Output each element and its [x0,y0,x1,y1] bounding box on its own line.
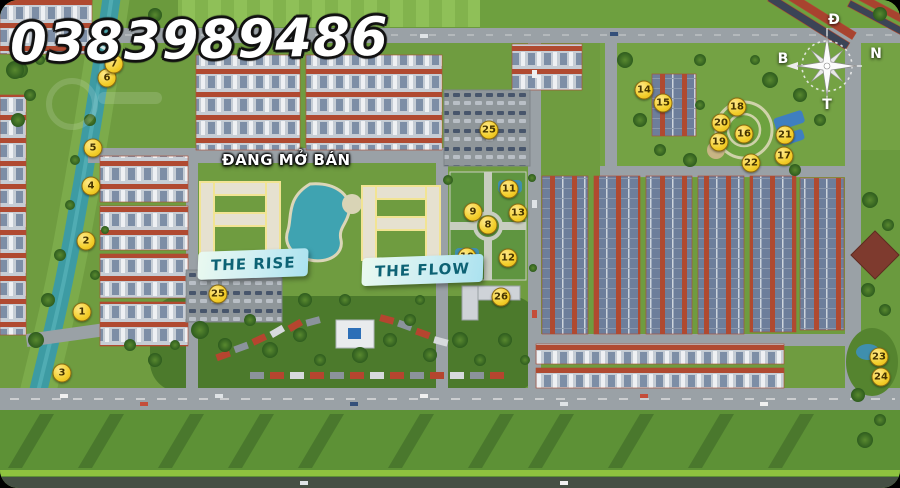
zone-label-the-rise: THE RISE [197,248,309,280]
masterplan-map: 1234567891011121314151617181920212223242… [0,0,900,488]
map-marker-3: 3 [53,364,72,383]
map-marker-19: 19 [710,133,729,152]
map-marker-5: 5 [84,139,103,158]
map-marker-17: 17 [775,147,794,166]
watermark-logo [46,76,166,124]
sales-status-label: ĐANG MỞ BÁN [222,151,351,169]
map-marker-21: 21 [776,126,795,145]
compass-label-west: T [822,97,832,113]
map-marker-15: 15 [654,94,673,113]
phone-number-overlay: 0383989486 [9,7,390,75]
map-marker-26: 26 [492,288,511,307]
map-marker-13: 13 [509,204,528,223]
map-marker-24: 24 [872,368,891,387]
map-marker-9: 9 [464,203,483,222]
map-marker-11: 11 [500,180,519,199]
map-marker-18: 18 [728,98,747,117]
map-marker-2: 2 [77,232,96,251]
screenshot-root: 1234567891011121314151617181920212223242… [0,0,900,488]
masterplan-render [0,0,900,488]
map-marker-20: 20 [712,114,731,133]
map-marker-12: 12 [499,249,518,268]
zone-label-the-flow: THE FLOW [361,254,483,286]
map-marker-25: 25 [209,285,228,304]
compass-label-north: N [870,46,882,62]
compass-label-east: Đ [828,12,840,28]
map-marker-8: 8 [479,216,498,235]
map-marker-22: 22 [742,154,761,173]
map-marker-16: 16 [735,125,754,144]
map-marker-1: 1 [73,303,92,322]
compass-rose: Đ N B T [772,10,884,122]
map-marker-4: 4 [82,177,101,196]
map-marker-14: 14 [635,81,654,100]
map-marker-25: 25 [480,121,499,140]
compass-label-south: B [778,51,789,67]
map-marker-23: 23 [870,348,889,367]
